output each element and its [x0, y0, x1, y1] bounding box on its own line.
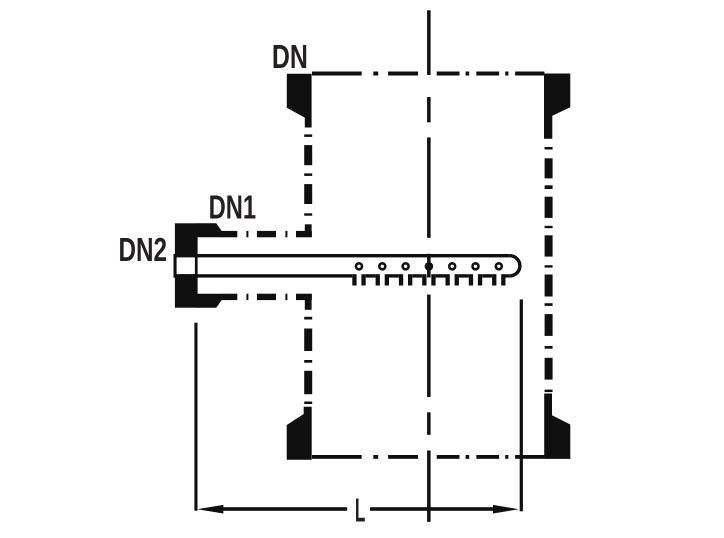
svg-text:DN: DN [272, 39, 308, 76]
svg-text:L: L [355, 491, 366, 528]
svg-text:DN1: DN1 [209, 188, 257, 225]
svg-text:DN2: DN2 [119, 232, 168, 269]
